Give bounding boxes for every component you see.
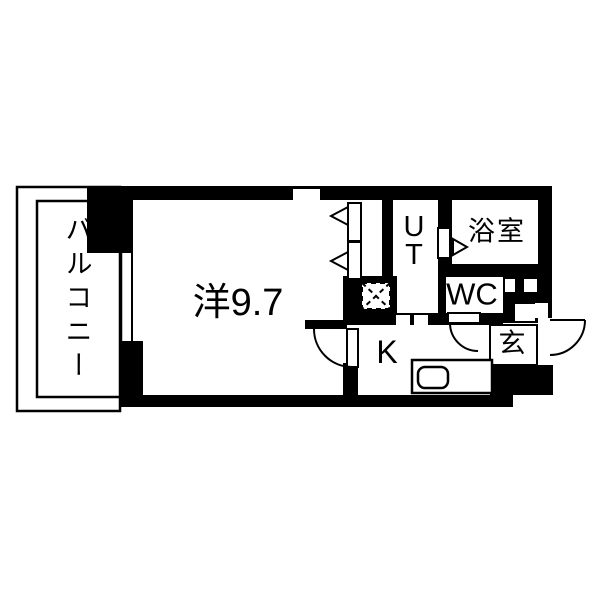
room-label-bathroom: 浴室 bbox=[468, 219, 526, 246]
door-swing-arc bbox=[450, 323, 478, 351]
ut-entry-slot bbox=[414, 315, 428, 325]
bath-sliding-door bbox=[438, 228, 467, 258]
wc-door bbox=[448, 313, 480, 351]
refrigerator-space-icon bbox=[362, 283, 390, 309]
room-label-toilet: WC bbox=[446, 279, 498, 310]
room-label-entrance: 玄 bbox=[499, 331, 526, 358]
room-label-western-room: 洋9.7 bbox=[193, 284, 284, 322]
room-label-kitchen: K bbox=[376, 336, 397, 368]
top-wall-notch bbox=[293, 189, 320, 200]
room-label-utility: UT bbox=[403, 213, 425, 269]
kitchen-counter bbox=[412, 360, 492, 393]
sliding-door-triangle-icon bbox=[331, 252, 348, 270]
closet bbox=[331, 203, 361, 279]
meter-box bbox=[515, 304, 535, 321]
sliding-door-triangle-icon bbox=[331, 207, 348, 225]
ut-entry-slot bbox=[396, 315, 410, 325]
pipe-space bbox=[524, 279, 537, 292]
sink-icon bbox=[418, 367, 448, 388]
room-door bbox=[314, 329, 358, 367]
door-swing-arc bbox=[550, 320, 585, 355]
room-label-balcony: バルコニー bbox=[63, 215, 90, 385]
entrance-doorway bbox=[538, 318, 552, 365]
pipe-space bbox=[505, 279, 515, 292]
meter-box bbox=[535, 303, 548, 318]
floor-plan: バルコニー 洋9.7 UT 浴室 WC K 玄 bbox=[0, 0, 600, 600]
sliding-door-triangle-icon bbox=[453, 239, 467, 255]
entrance-door bbox=[550, 320, 585, 355]
